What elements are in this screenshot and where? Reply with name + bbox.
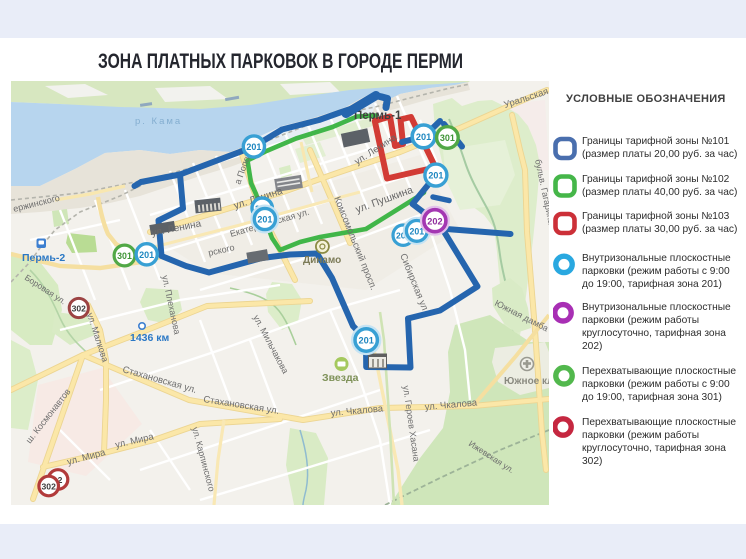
svg-text:1436 км: 1436 км	[130, 332, 170, 344]
svg-text:201: 201	[428, 171, 443, 181]
svg-text:301: 301	[117, 251, 132, 261]
svg-text:р. Кама: р. Кама	[135, 116, 182, 127]
svg-text:Пермь-1: Пермь-1	[354, 110, 402, 122]
svg-text:302: 302	[42, 481, 57, 491]
svg-text:201: 201	[359, 336, 374, 346]
svg-text:302: 302	[72, 303, 87, 313]
svg-text:201: 201	[139, 250, 154, 260]
svg-text:201: 201	[246, 142, 261, 152]
svg-text:201: 201	[257, 215, 272, 225]
svg-text:Пермь-2: Пермь-2	[22, 252, 65, 264]
svg-text:Динамо: Динамо	[303, 255, 341, 266]
svg-text:Звезда: Звезда	[322, 372, 359, 384]
svg-text:301: 301	[440, 133, 455, 143]
svg-text:201: 201	[416, 132, 431, 142]
svg-text:202: 202	[427, 216, 442, 226]
